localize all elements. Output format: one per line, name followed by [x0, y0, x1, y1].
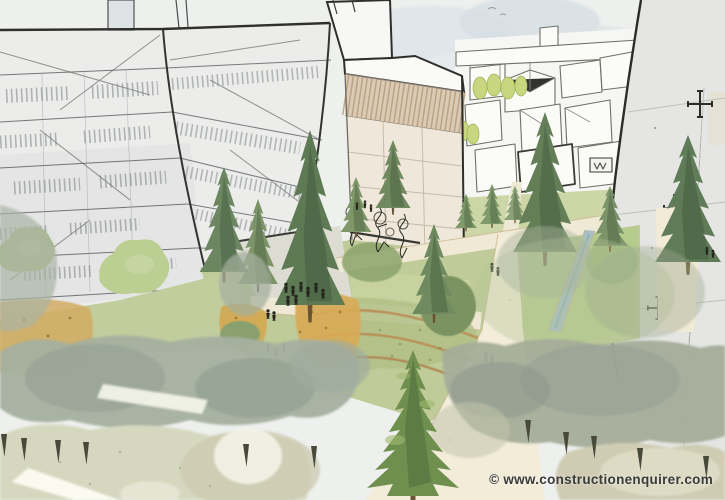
sketch-image: ©www.constructionenquirer.com	[0, 0, 725, 500]
copyright-icon: ©	[489, 472, 499, 487]
watermark: ©www.constructionenquirer.com	[489, 472, 713, 487]
scene-svg	[0, 0, 725, 500]
watermark-text: www.constructionenquirer.com	[503, 472, 713, 487]
